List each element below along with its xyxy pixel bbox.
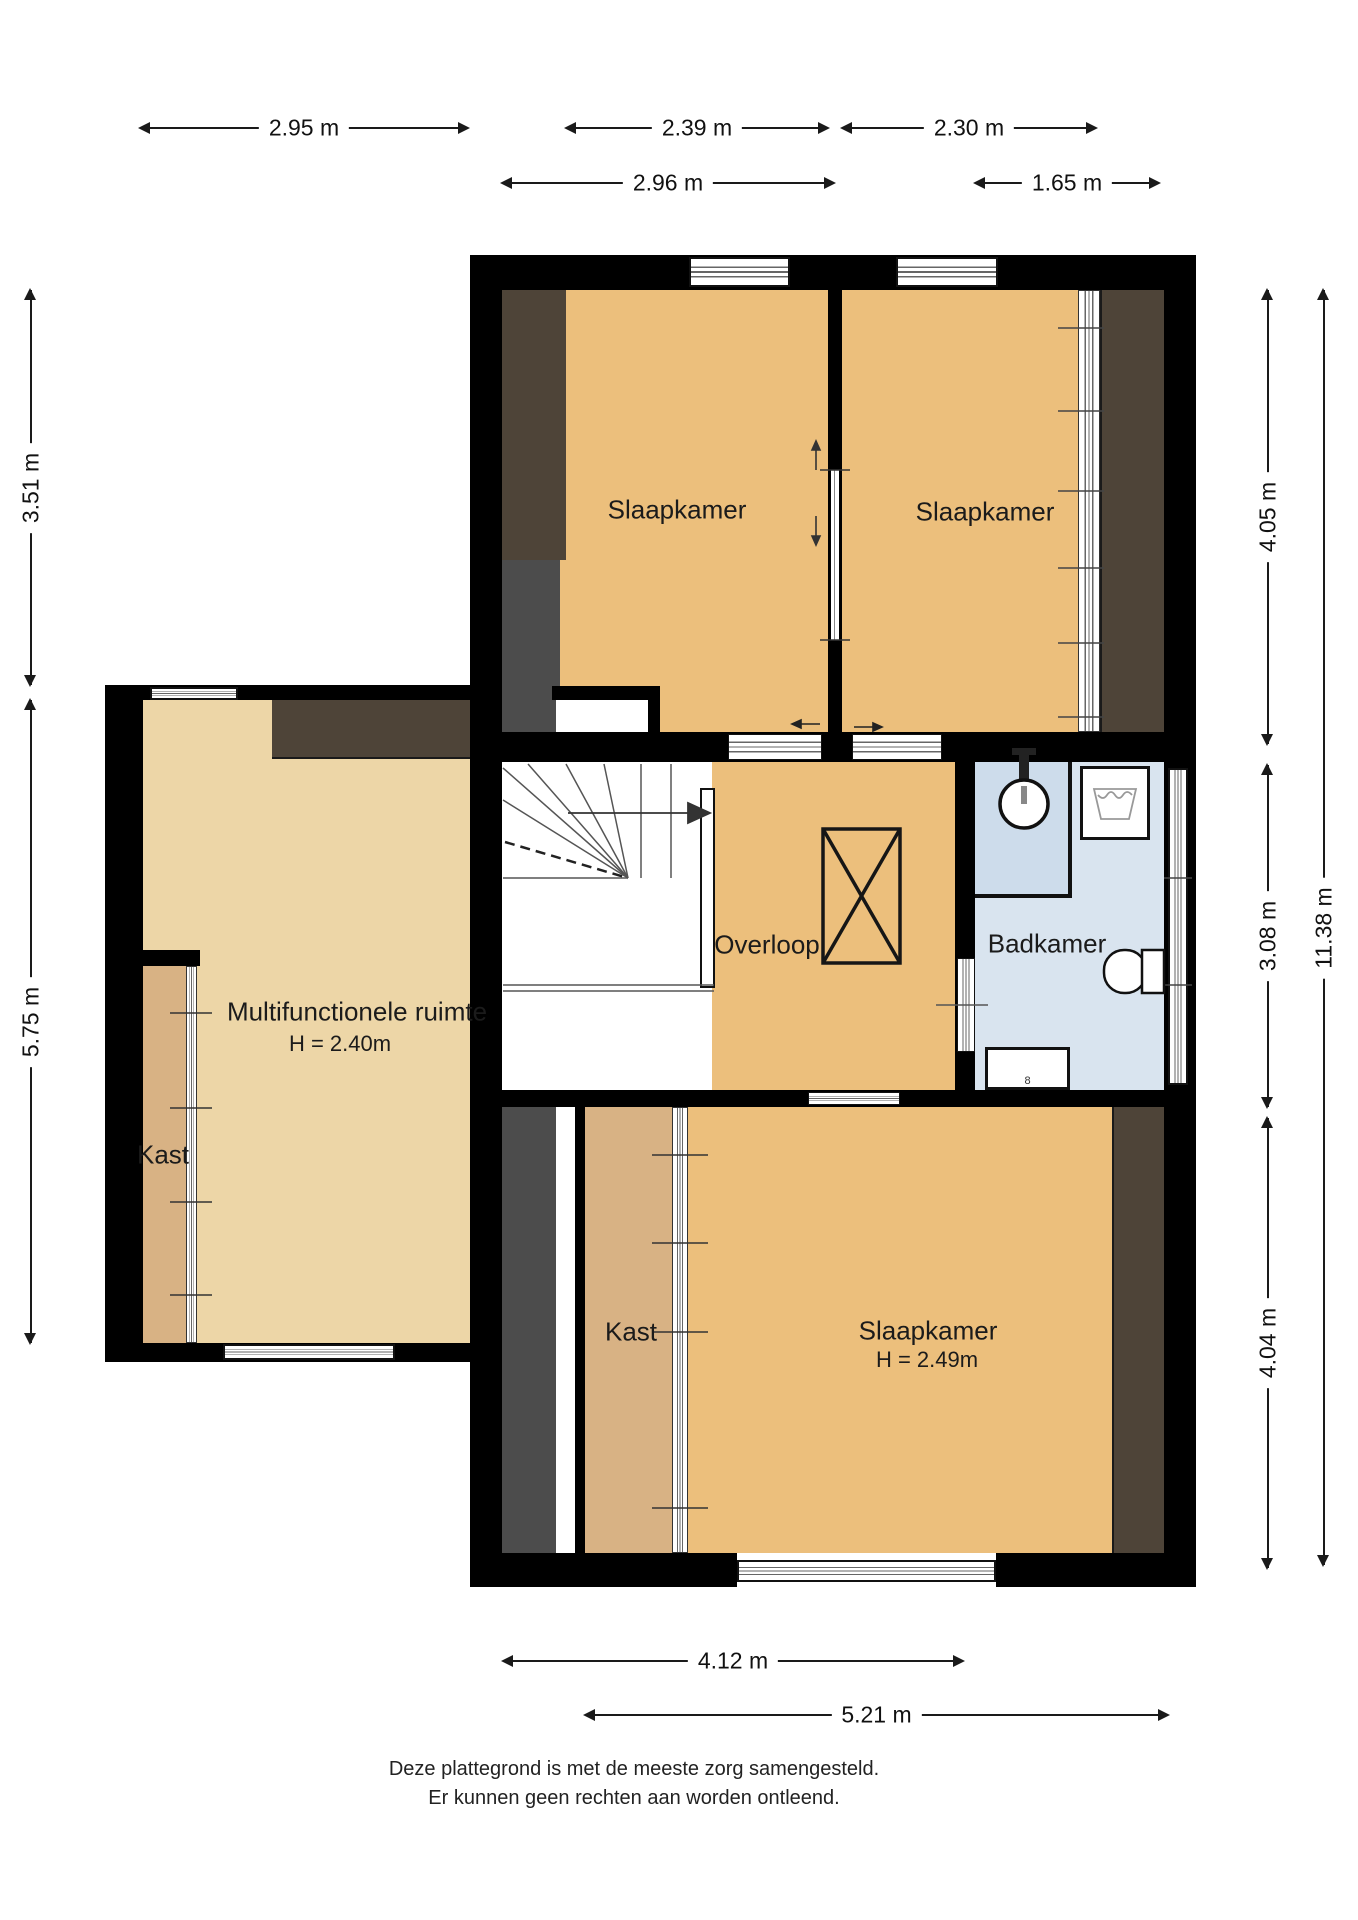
window-bedroom-left-top — [689, 257, 790, 287]
closet-bottom-left-wall — [575, 1107, 585, 1553]
washing-machine — [1080, 766, 1150, 840]
door-bedroom-bottom — [808, 1092, 900, 1105]
wall-bedroom-divider-top — [828, 290, 842, 470]
multifunctional-slope-strip — [272, 700, 470, 759]
dim-405: 4.05 m — [1267, 290, 1269, 744]
label-multifunctional: Multifunctionele ruimte — [227, 997, 487, 1028]
bedroom-right-window-strip — [1078, 290, 1100, 732]
floorplan-page: 8 — [0, 0, 1358, 1920]
shower-tray — [975, 762, 1072, 898]
bedroom-left-shaft — [502, 560, 560, 732]
dim-521: 5.21 m — [585, 1714, 1168, 1716]
dim-351: 3.51 m — [30, 290, 32, 685]
room-overloop-floor — [712, 762, 955, 1090]
door-badkamer — [957, 958, 975, 1052]
dim-404: 4.04 m — [1267, 1118, 1269, 1568]
bedroom-bottom-slope-strip — [1112, 1107, 1166, 1553]
label-overloop: Overloop — [714, 930, 820, 961]
stairwell-area — [502, 762, 712, 1090]
door-bedroom-right — [852, 734, 942, 760]
dim-165: 1.65 m — [975, 182, 1159, 184]
dim-296: 2.96 m — [502, 182, 834, 184]
radiator-symbol: 8 — [1024, 1076, 1030, 1087]
label-multifunctional-height: H = 2.40m — [289, 1031, 391, 1057]
radiator: 8 — [985, 1047, 1070, 1090]
window-bedroom-right-top — [896, 257, 998, 287]
stair-notch-frame-top — [552, 686, 660, 700]
stair-notch-frame-right — [648, 700, 660, 746]
label-bedroom-bottom-height: H = 2.49m — [876, 1347, 978, 1373]
dim-308: 3.08 m — [1267, 765, 1269, 1107]
closet-bottom-partition — [672, 1107, 688, 1553]
dim-412: 4.12 m — [503, 1660, 963, 1662]
bottom-section-shaft — [502, 1107, 556, 1553]
bedroom-right-slope-strip — [1100, 290, 1166, 732]
label-closet-bottom: Kast — [605, 1317, 657, 1348]
window-bedroom-bottom — [737, 1560, 996, 1582]
label-bedroom-right: Slaapkamer — [916, 497, 1055, 528]
wall-closet-left-stub — [143, 950, 200, 966]
wall-top — [470, 255, 1196, 290]
wall-mid-horizontal — [502, 732, 1196, 762]
dim-239: 2.39 m — [566, 127, 828, 129]
wall-bedroom-divider-pocket — [828, 470, 842, 640]
dim-230: 2.30 m — [842, 127, 1096, 129]
window-multifunctional-bottom — [223, 1344, 395, 1360]
dim-1138: 11.38 m — [1323, 290, 1325, 1565]
disclaimer-line-2: Er kunnen geen rechten aan worden ontlee… — [428, 1787, 839, 1810]
door-bedroom-left — [728, 734, 822, 760]
dim-575: 5.75 m — [30, 700, 32, 1343]
wall-extension-left — [105, 685, 143, 1362]
bedroom-left-slope-strip — [502, 290, 566, 560]
label-bedroom-bottom: Slaapkamer — [859, 1316, 998, 1347]
wall-bedroom-divider-bottom — [828, 640, 842, 732]
window-multifunctional-top — [150, 687, 238, 700]
stair-railing — [700, 788, 715, 988]
window-badkamer-right — [1168, 768, 1188, 1085]
label-badkamer: Badkamer — [988, 929, 1107, 960]
dim-295: 2.95 m — [140, 127, 468, 129]
stair-notch-opening — [556, 700, 648, 732]
label-closet-left: Kast — [137, 1140, 189, 1171]
disclaimer-line-1: Deze plattegrond is met de meeste zorg s… — [389, 1758, 879, 1781]
label-bedroom-left: Slaapkamer — [608, 495, 747, 526]
wall-left-main — [470, 255, 502, 1587]
bottom-section-gap — [556, 1107, 575, 1553]
